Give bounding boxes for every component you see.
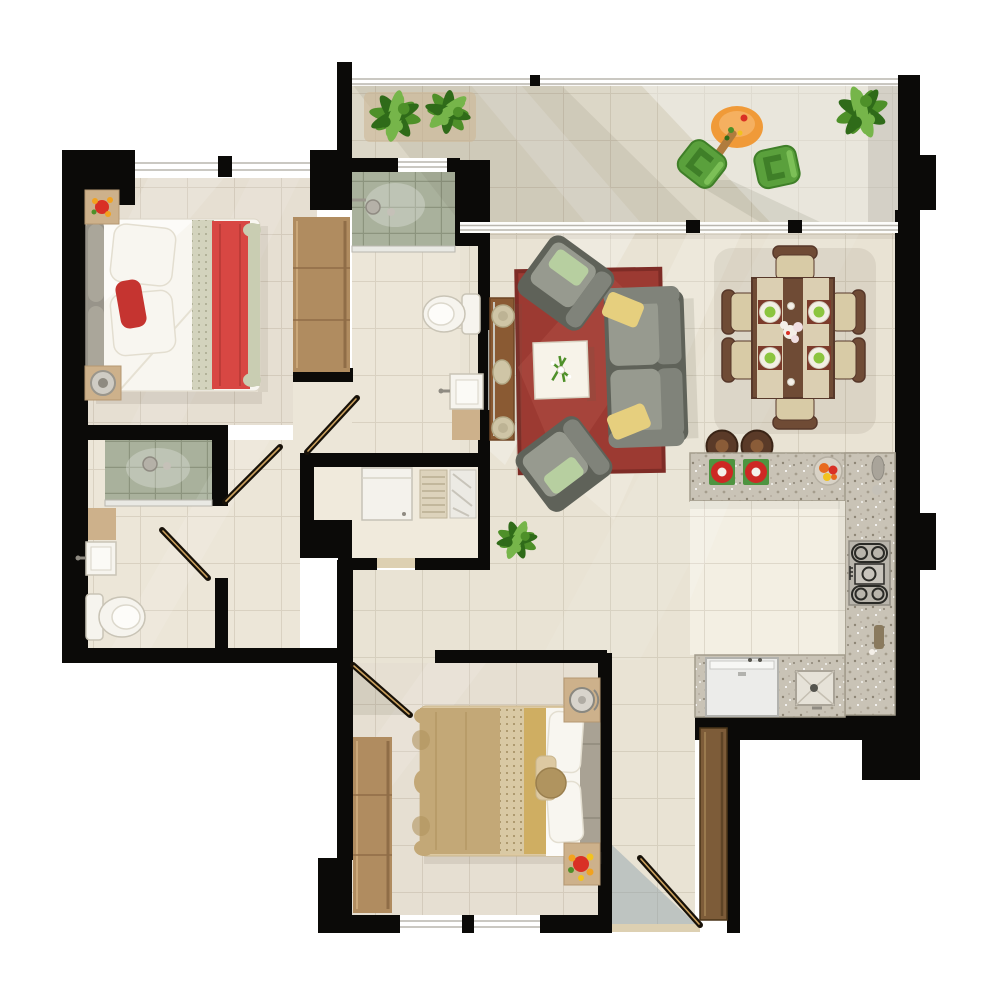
round-pillow <box>536 768 566 798</box>
entry-door <box>700 728 727 920</box>
master-wardrobe <box>293 217 350 372</box>
bathroom-toilet <box>86 594 145 640</box>
console-table <box>490 298 514 440</box>
dining-chair <box>831 290 865 334</box>
closet-threshold <box>377 558 415 568</box>
refrigerator <box>706 658 778 716</box>
coffee-table <box>533 341 596 403</box>
entry-threshold <box>612 924 700 932</box>
dining-table <box>752 278 834 398</box>
terrace-window <box>398 158 447 172</box>
dining-chair <box>773 395 817 429</box>
candle <box>788 303 795 310</box>
dining-chair <box>722 290 756 334</box>
ensuite-shower-glass <box>352 246 455 252</box>
nightstand-lamp <box>564 678 600 722</box>
nightstand-top <box>85 190 119 224</box>
ironing-board <box>450 470 476 518</box>
place-setting <box>807 346 831 370</box>
shower-glass-door <box>105 500 212 506</box>
patio-chair <box>753 144 802 190</box>
master-bedroom <box>85 190 350 404</box>
kitchen-sink <box>796 671 834 708</box>
decorative-shell <box>493 360 511 384</box>
dining-chair <box>722 338 756 382</box>
ensuite-toilet <box>423 294 480 334</box>
dining-chair <box>773 246 817 280</box>
master-bed <box>86 219 261 391</box>
red-serving-bowl <box>743 459 769 485</box>
second-bedroom-window <box>400 915 540 933</box>
second-bed <box>412 706 600 856</box>
nightstand-flowers <box>564 843 600 885</box>
candle <box>788 379 795 386</box>
wood-shelf <box>88 508 116 540</box>
floor-plan <box>0 0 1000 1000</box>
gas-stove <box>849 541 890 605</box>
nightstand-bottom <box>85 366 121 400</box>
pillow <box>109 223 177 287</box>
drying-rack <box>420 470 447 518</box>
place-setting <box>807 300 831 324</box>
sofa <box>600 285 699 448</box>
floor-plan-svg <box>0 0 1000 1000</box>
shower-head <box>143 457 157 471</box>
place-setting <box>758 300 782 324</box>
bottle <box>874 625 884 649</box>
place-setting <box>758 346 782 370</box>
fruit-bowl <box>814 457 842 485</box>
shower-head <box>366 200 380 214</box>
balcony-railing <box>352 75 898 86</box>
bedroom-wardrobe <box>353 737 392 913</box>
red-throw <box>212 221 250 389</box>
red-serving-bowl <box>709 459 735 485</box>
dining-chair <box>831 338 865 382</box>
master-bedroom-window <box>135 155 310 178</box>
kitchen <box>690 453 895 717</box>
